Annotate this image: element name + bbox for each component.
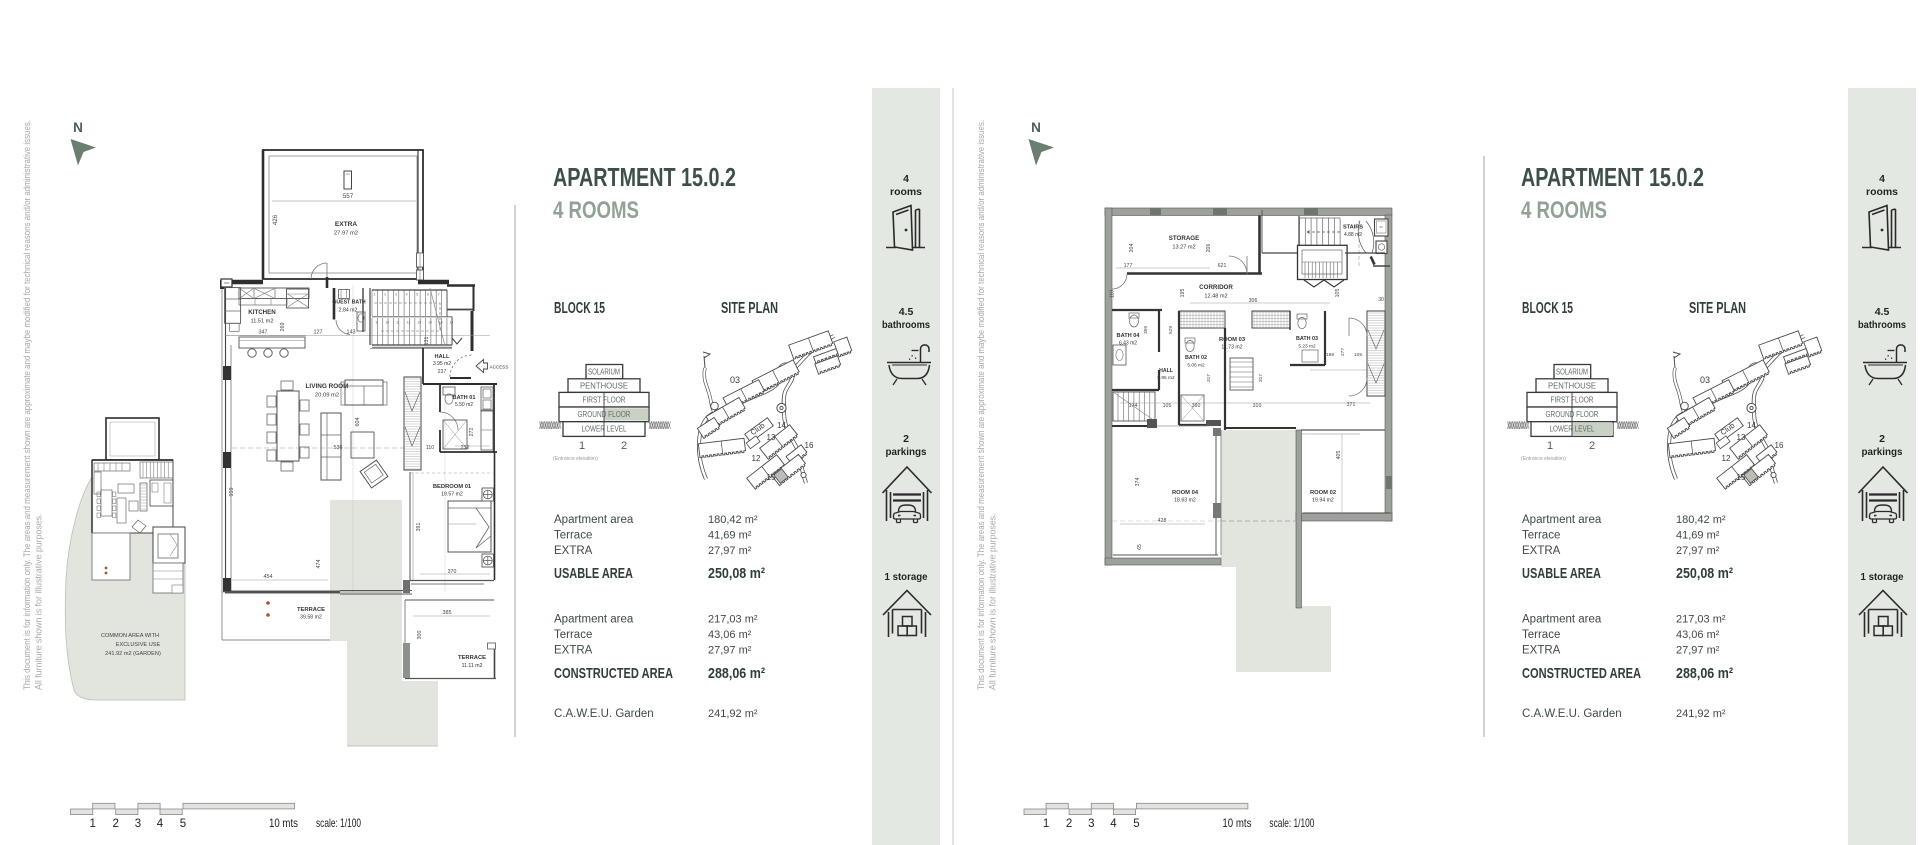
- svg-text:300: 300: [417, 631, 423, 640]
- svg-text:5.50 m2: 5.50 m2: [455, 402, 473, 408]
- svg-text:204: 204: [1129, 244, 1135, 253]
- svg-text:474: 474: [316, 560, 322, 569]
- svg-text:272: 272: [469, 428, 475, 437]
- svg-text:16: 16: [450, 321, 454, 325]
- svg-text:13: 13: [418, 321, 422, 325]
- svg-text:959: 959: [229, 488, 235, 497]
- svg-text:241.92 m2 (GARDEN): 241.92 m2 (GARDEN): [105, 651, 161, 657]
- svg-text:385: 385: [443, 610, 452, 616]
- svg-text:454: 454: [264, 574, 273, 580]
- svg-text:426: 426: [272, 214, 279, 225]
- svg-text:BATH 02: BATH 02: [1185, 355, 1207, 361]
- svg-text:BEDROOM 01: BEDROOM 01: [433, 484, 472, 490]
- svg-text:11.11 m2: 11.11 m2: [462, 663, 483, 669]
- svg-text:ROOM 04: ROOM 04: [1172, 490, 1199, 496]
- svg-text:347: 347: [259, 330, 268, 336]
- svg-text:BATH 04: BATH 04: [1117, 333, 1141, 339]
- svg-text:18.63 m2: 18.63 m2: [1174, 498, 1196, 504]
- svg-text:237: 237: [438, 369, 447, 375]
- svg-text:174: 174: [1129, 403, 1138, 409]
- svg-text:65: 65: [1137, 544, 1143, 550]
- svg-text:39.58 m2: 39.58 m2: [300, 615, 322, 621]
- svg-text:20.09 m2: 20.09 m2: [315, 393, 339, 399]
- svg-text:391: 391: [416, 523, 422, 532]
- svg-text:604: 604: [355, 418, 361, 427]
- svg-text:EXTRA: EXTRA: [335, 221, 358, 228]
- svg-text:HALL: HALL: [1159, 368, 1174, 374]
- svg-text:127: 127: [314, 330, 323, 336]
- svg-text:5.95 m2: 5.95 m2: [1157, 375, 1175, 381]
- svg-text:7: 7: [438, 293, 440, 297]
- svg-text:BATH 01: BATH 01: [453, 395, 476, 401]
- svg-text:6.43 m2: 6.43 m2: [1119, 341, 1137, 347]
- svg-text:105: 105: [1354, 352, 1362, 358]
- svg-text:4.88 m2: 4.88 m2: [1344, 232, 1362, 238]
- svg-text:10: 10: [385, 321, 389, 325]
- svg-text:277: 277: [1340, 348, 1346, 356]
- svg-text:TERRACE: TERRACE: [297, 607, 325, 613]
- svg-text:27.97 m2: 27.97 m2: [334, 231, 358, 237]
- svg-text:2.84 m2: 2.84 m2: [339, 308, 358, 314]
- svg-text:CORRIDOR: CORRIDOR: [1199, 284, 1233, 291]
- svg-text:110: 110: [426, 445, 434, 451]
- svg-text:105: 105: [1163, 403, 1172, 409]
- svg-text:557: 557: [343, 193, 354, 200]
- svg-text:14: 14: [428, 321, 432, 325]
- svg-text:529: 529: [1168, 326, 1174, 334]
- svg-text:STORAGE: STORAGE: [1169, 235, 1199, 242]
- svg-text:189: 189: [1326, 352, 1334, 358]
- svg-text:4: 4: [406, 293, 408, 297]
- svg-text:317: 317: [1258, 374, 1264, 382]
- svg-text:3: 3: [395, 293, 397, 297]
- svg-text:110: 110: [1110, 290, 1116, 298]
- svg-text:405: 405: [1336, 451, 1342, 460]
- svg-text:19.94 m2: 19.94 m2: [1312, 498, 1334, 504]
- svg-text:EXCLUSIVE USE: EXCLUSIVE USE: [116, 642, 161, 648]
- svg-text:KITCHEN: KITCHEN: [248, 309, 276, 316]
- svg-text:TERRACE: TERRACE: [458, 655, 486, 661]
- svg-text:105: 105: [1335, 289, 1341, 298]
- svg-text:ROOM 03: ROOM 03: [1219, 337, 1246, 343]
- svg-text:6: 6: [427, 293, 429, 297]
- svg-text:621: 621: [1218, 263, 1227, 269]
- svg-text:GUEST BATH: GUEST BATH: [332, 300, 366, 306]
- svg-text:12.48 m2: 12.48 m2: [1204, 294, 1227, 300]
- svg-text:11: 11: [396, 321, 400, 325]
- svg-text:11.51 m2: 11.51 m2: [251, 319, 274, 325]
- svg-text:206: 206: [1206, 244, 1212, 253]
- svg-text:COMMON AREA WITH: COMMON AREA WITH: [101, 633, 159, 639]
- svg-text:374: 374: [1135, 478, 1141, 487]
- svg-text:LIVING ROOM: LIVING ROOM: [306, 383, 349, 390]
- svg-text:19.57 m2: 19.57 m2: [441, 492, 463, 498]
- svg-text:5: 5: [416, 293, 418, 297]
- svg-text:HALL: HALL: [435, 354, 450, 360]
- svg-text:131: 131: [424, 337, 430, 346]
- svg-text:5.23 m2: 5.23 m2: [1298, 344, 1316, 350]
- svg-text:30: 30: [1378, 297, 1384, 303]
- svg-text:195: 195: [1180, 289, 1186, 298]
- svg-text:9: 9: [376, 321, 378, 325]
- svg-text:STAIRS: STAIRS: [1343, 225, 1363, 231]
- svg-text:12: 12: [407, 321, 411, 325]
- svg-text:269: 269: [280, 323, 286, 332]
- svg-text:310: 310: [1253, 403, 1262, 409]
- svg-text:AV: AV: [1379, 225, 1383, 229]
- svg-text:317: 317: [1206, 374, 1212, 382]
- svg-text:ROOM 02: ROOM 02: [1310, 490, 1336, 496]
- svg-text:13.27 m2: 13.27 m2: [1172, 245, 1195, 251]
- svg-text:3.95 m2: 3.95 m2: [433, 361, 451, 367]
- svg-text:BATH 03: BATH 03: [1296, 336, 1318, 342]
- svg-text:359: 359: [1143, 326, 1149, 334]
- svg-text:5.06 m2: 5.06 m2: [1187, 363, 1205, 369]
- svg-text:2: 2: [384, 293, 386, 297]
- svg-text:1: 1: [374, 293, 376, 297]
- svg-text:ACCESS: ACCESS: [490, 365, 509, 370]
- svg-text:11.73 m2: 11.73 m2: [1221, 345, 1242, 351]
